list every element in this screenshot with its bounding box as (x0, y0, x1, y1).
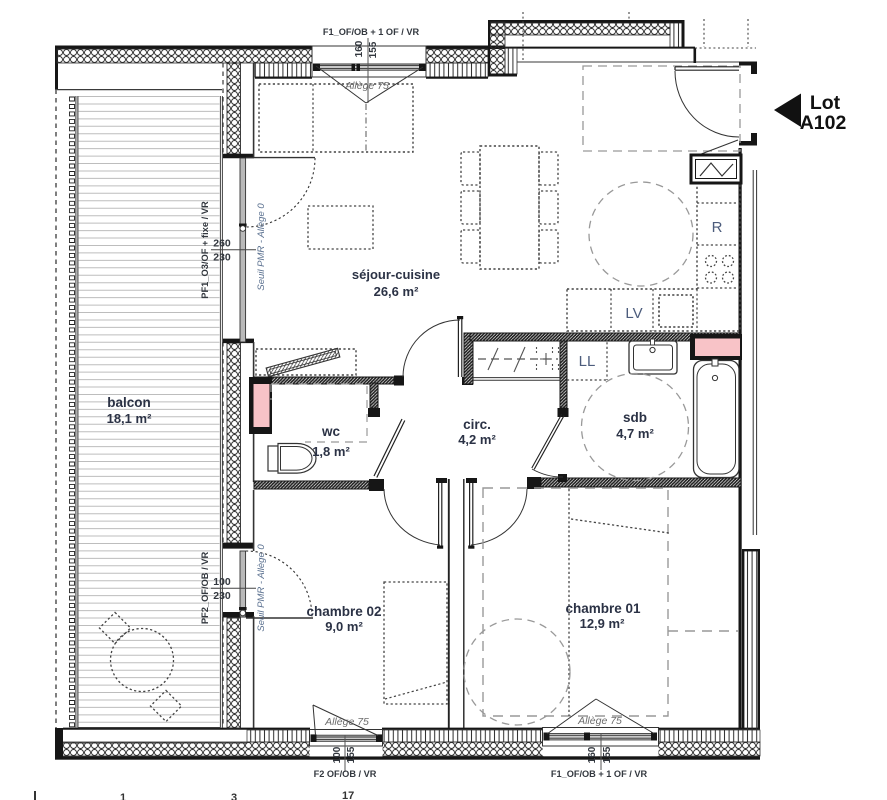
svg-text:230: 230 (213, 252, 231, 264)
svg-text:balcon: balcon (107, 395, 151, 410)
svg-text:F1_OF/OB + 1 OF / VR: F1_OF/OB + 1 OF / VR (323, 27, 420, 37)
svg-text:chambre 02: chambre 02 (306, 604, 381, 619)
svg-text:17: 17 (342, 790, 354, 800)
svg-text:PF2_OF/OB / VR: PF2_OF/OB / VR (200, 552, 210, 625)
svg-text:18,1 m²: 18,1 m² (107, 411, 152, 426)
svg-text:séjour-cuisine: séjour-cuisine (352, 267, 440, 282)
svg-text:26,6 m²: 26,6 m² (374, 284, 419, 299)
svg-text:230: 230 (213, 590, 231, 602)
svg-text:Allège 75: Allège 75 (344, 80, 389, 92)
svg-text:155: 155 (368, 41, 379, 58)
svg-text:A102: A102 (800, 112, 847, 134)
svg-text:F1_OF/OB + 1 OF / VR: F1_OF/OB + 1 OF / VR (551, 769, 648, 779)
svg-text:circ.: circ. (463, 417, 491, 432)
svg-text:4,2 m²: 4,2 m² (458, 432, 496, 447)
svg-text:chambre 01: chambre 01 (565, 601, 641, 616)
svg-text:PF1_O3/OF + fixe / VR: PF1_O3/OF + fixe / VR (200, 201, 210, 299)
svg-text:1,8 m²: 1,8 m² (312, 444, 350, 459)
svg-text:LV: LV (625, 305, 642, 322)
svg-text:160: 160 (587, 746, 598, 763)
svg-text:Allège 75: Allège 75 (577, 715, 622, 727)
svg-text:9,0 m²: 9,0 m² (325, 619, 363, 634)
svg-text:4,7 m²: 4,7 m² (616, 426, 654, 441)
svg-text:Seuil PMR - Allège 0: Seuil PMR - Allège 0 (256, 544, 267, 632)
svg-text:Seuil PMR - Allège 0: Seuil PMR - Allège 0 (256, 203, 267, 291)
svg-text:155: 155 (602, 746, 613, 763)
svg-text:sdb: sdb (623, 410, 647, 425)
svg-text:R: R (712, 219, 723, 236)
svg-text:F2 OF/OB / VR: F2 OF/OB / VR (314, 769, 377, 779)
svg-text:LL: LL (579, 353, 596, 370)
svg-text:155: 155 (346, 746, 357, 763)
svg-text:1: 1 (120, 792, 126, 800)
svg-text:Allège 75: Allège 75 (324, 716, 369, 728)
svg-text:100: 100 (332, 746, 343, 763)
svg-text:260: 260 (213, 238, 231, 250)
svg-text:Lot: Lot (810, 92, 841, 114)
svg-text:12,9 m²: 12,9 m² (580, 616, 625, 631)
svg-text:wc: wc (321, 424, 341, 439)
svg-text:3: 3 (231, 792, 237, 800)
svg-text:160: 160 (354, 40, 365, 57)
svg-text:100: 100 (213, 576, 231, 588)
